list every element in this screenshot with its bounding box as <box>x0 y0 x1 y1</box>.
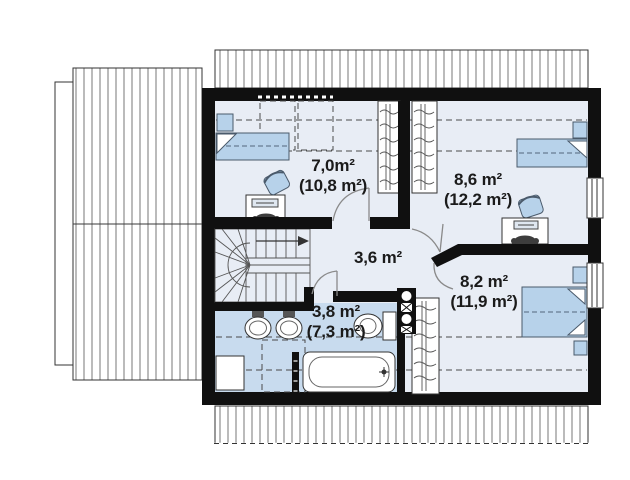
bathroom-cabinet-symbol <box>216 356 244 390</box>
room-area: 8,6 m² <box>408 170 548 190</box>
room-area-total: (7,3 m²) <box>276 322 396 342</box>
desk-symbol <box>502 218 548 247</box>
wardrobe-symbol <box>412 298 439 394</box>
room-label-bedroom-bottom-right: 8,2 m² (11,9 m²) <box>414 272 554 312</box>
garage-roof-left <box>55 68 202 380</box>
room-area: 3,8 m² <box>276 302 396 322</box>
floor-plan-drawing <box>0 0 630 480</box>
nightstand-symbol <box>217 114 233 131</box>
radiator-symbol <box>292 352 299 398</box>
floor-plan-canvas: 7,0m² (10,8 m²) 8,6 m² (12,2 m²) 3,6 m² … <box>0 0 630 480</box>
room-label-bedroom-top-right: 8,6 m² (12,2 m²) <box>408 170 548 210</box>
nightstand-symbol <box>573 122 587 138</box>
room-area: 8,2 m² <box>414 272 554 292</box>
room-area-total: (11,9 m²) <box>414 292 554 312</box>
window-symbol <box>587 263 603 308</box>
room-area-total: (12,2 m²) <box>408 190 548 210</box>
room-label-hall: 3,6 m² <box>328 248 428 268</box>
room-area: 7,0m² <box>263 156 403 176</box>
nightstand-symbol <box>574 341 587 355</box>
room-area: 3,6 m² <box>328 248 428 268</box>
room-label-bathroom: 3,8 m² (7,3 m²) <box>276 302 396 342</box>
nightstand-symbol <box>573 267 587 283</box>
bathtub-symbol <box>303 352 395 392</box>
single-bed-symbol <box>517 139 587 167</box>
window-symbol <box>587 178 603 218</box>
room-label-bedroom-top-left: 7,0m² (10,8 m²) <box>263 156 403 196</box>
roof-strip-bottom <box>214 406 589 444</box>
roof-strip-top <box>215 50 588 88</box>
room-area-total: (10,8 m²) <box>263 176 403 196</box>
